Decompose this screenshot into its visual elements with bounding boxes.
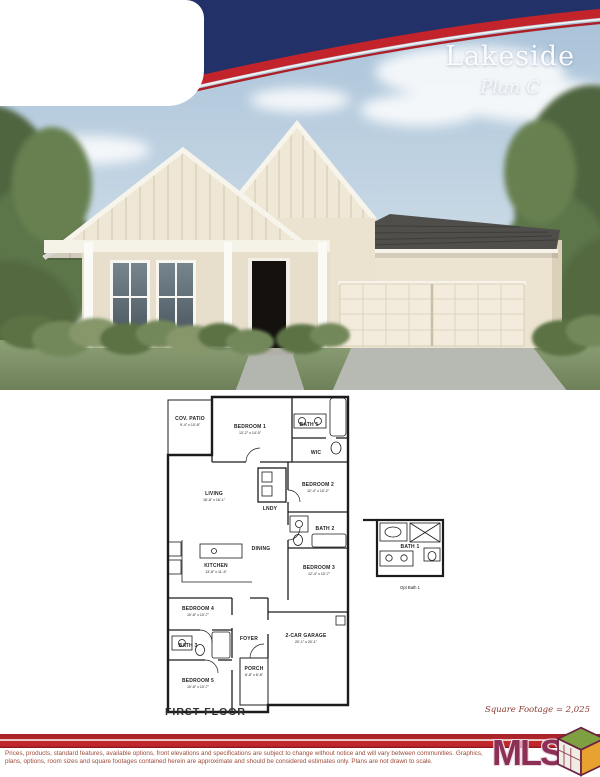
room-dims-bedroom4: 10'-8" x 10'-7" <box>187 613 210 617</box>
room-label-dining: DINING <box>252 546 271 552</box>
garage-door <box>338 281 526 346</box>
floor-plan-drawing: COV. PATIO 9'-4" x 10'-8" BEDROOM 1 13'-… <box>0 390 600 735</box>
logo-placeholder-box <box>0 0 204 106</box>
opt-bath-caption: Opt Bath 1 <box>400 585 421 590</box>
room-dims-cov-patio: 9'-4" x 10'-8" <box>180 423 201 427</box>
room-dims-kitchen: 13'-8" x 11'-4" <box>205 570 228 574</box>
room-dims-porch: 6'-8" x 6'-8" <box>245 673 264 677</box>
room-label-bath1: BATH 1 <box>300 422 319 428</box>
room-label-bedroom2: BEDROOM 2 <box>302 482 334 488</box>
mls-logo-text: MLS <box>492 732 562 774</box>
first-floor-title: FIRST FLOOR <box>165 706 246 718</box>
room-dims-garage: 20'-1" x 20'-1" <box>295 640 318 644</box>
community-name: Lakeside <box>430 41 590 72</box>
disclaimer-line-2: plans, options, room sizes and square fo… <box>5 758 505 766</box>
room-dims-bedroom2: 12'-4" x 10'-2" <box>307 489 330 493</box>
room-label-bath2: BATH 2 <box>316 526 335 532</box>
room-label-bath3: BATH 3 <box>179 643 198 649</box>
room-dims-bedroom5: 10'-8" x 10'-7" <box>187 685 210 689</box>
floor-plan-sheet: COV. PATIO 9'-4" x 10'-8" BEDROOM 1 13'-… <box>0 390 600 735</box>
mls-cube-icon <box>554 726 600 777</box>
room-label-cov-patio: COV. PATIO <box>175 416 205 422</box>
plan-name: Plan C <box>430 77 590 98</box>
room-label-porch: PORCH <box>244 666 263 672</box>
room-label-kitchen: KITCHEN <box>204 563 228 569</box>
room-label-garage: 2-CAR GARAGE <box>285 633 326 639</box>
room-label-lndy: LNDY <box>263 506 278 512</box>
room-dims-bedroom1: 13'-2" x 14'-0" <box>239 431 262 435</box>
room-label-wic: WIC <box>311 450 322 456</box>
room-label-living: LIVING <box>205 491 223 497</box>
plan-walls <box>168 397 348 712</box>
room-label-bedroom4: BEDROOM 4 <box>182 606 214 612</box>
mls-logo: MLS <box>492 726 600 777</box>
room-label-opt-bath: BATH 1 <box>401 544 420 550</box>
flyer-page: Lakeside Plan C <box>0 0 600 777</box>
room-dims-living: 16'-8" x 16'-1" <box>203 498 226 502</box>
room-label-bedroom3: BEDROOM 3 <box>303 565 335 571</box>
square-footage-label: Square Footage = 2,025 <box>485 705 590 715</box>
room-label-bedroom5: BEDROOM 5 <box>182 678 214 684</box>
room-label-bedroom1: BEDROOM 1 <box>234 424 266 430</box>
disclaimer-line-1: Prices, products, standard features, ava… <box>5 750 505 758</box>
disclaimer: Prices, products, standard features, ava… <box>5 750 505 766</box>
room-label-foyer: FOYER <box>240 636 258 642</box>
room-dims-bedroom3: 12'-4" x 10'-7" <box>308 572 331 576</box>
